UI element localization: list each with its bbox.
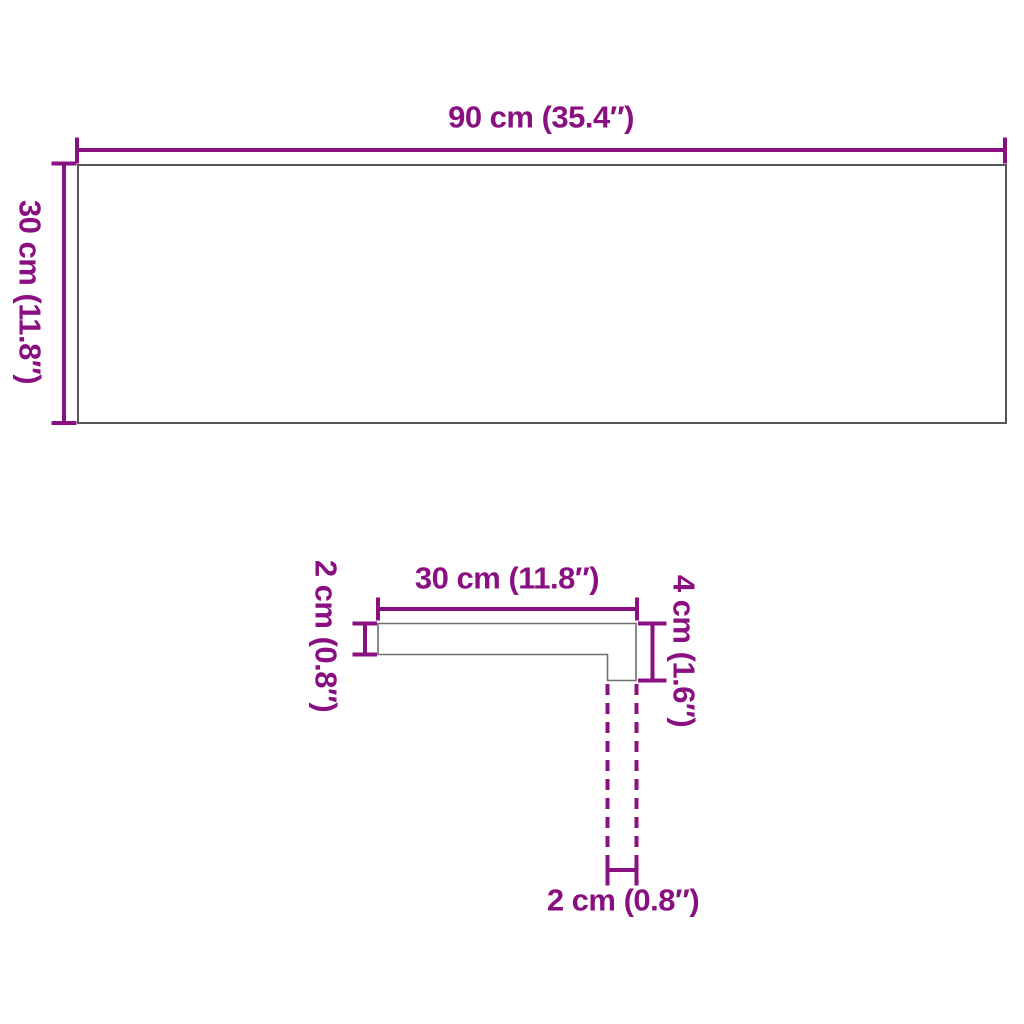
top-view-height-label: 30 cm (11.8″) [15, 200, 46, 384]
dimension-diagram-image: 90 cm (35.4″) 30 cm (11.8″) 30 cm (11.8″… [0, 0, 1024, 1024]
top-view-width-label: 90 cm (35.4″) [448, 102, 634, 133]
profile-height-label: 4 cm (1.6″) [669, 575, 700, 727]
profile-nose-label: 2 cm (0.8″) [547, 885, 699, 916]
profile-thickness-label: 2 cm (0.8″) [311, 560, 342, 712]
profile-outline [378, 624, 636, 681]
profile-width-label: 30 cm (11.8″) [415, 563, 599, 594]
diagram-canvas [0, 0, 1024, 1024]
top-view-board-outline [78, 165, 1006, 423]
